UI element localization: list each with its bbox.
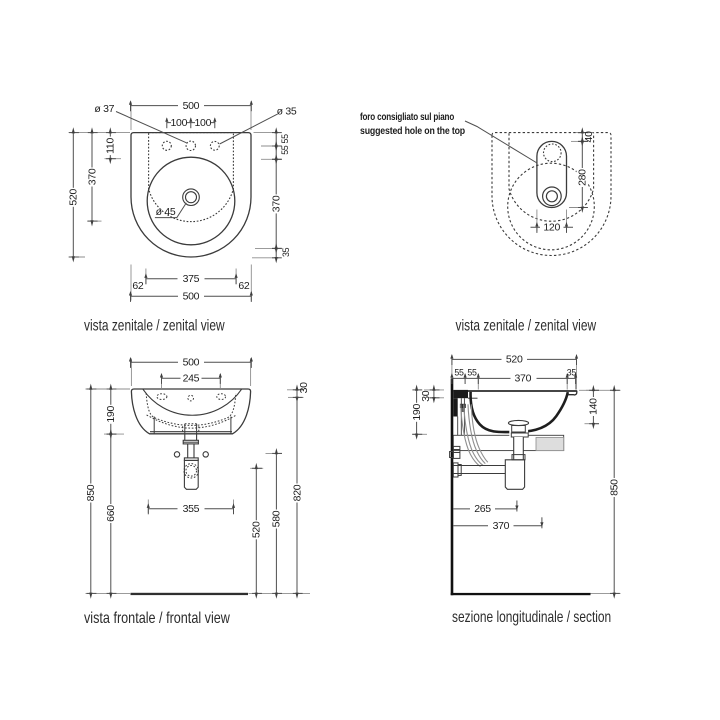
svg-text:850: 850	[609, 479, 621, 496]
svg-text:ø 35: ø 35	[277, 106, 297, 118]
svg-text:30: 30	[420, 390, 432, 402]
svg-text:660: 660	[105, 505, 117, 522]
svg-text:62: 62	[132, 280, 144, 292]
svg-text:500: 500	[183, 100, 200, 112]
svg-text:370: 370	[271, 195, 283, 212]
svg-text:62: 62	[238, 280, 250, 292]
svg-text:500: 500	[183, 291, 200, 303]
svg-text:110: 110	[105, 138, 117, 154]
svg-text:35: 35	[281, 247, 291, 257]
svg-text:vista zenitale / zenital view: vista zenitale / zenital view	[84, 316, 225, 334]
svg-text:245: 245	[183, 373, 200, 385]
svg-text:580: 580	[271, 510, 283, 527]
svg-text:520: 520	[68, 189, 80, 206]
svg-text:190: 190	[105, 406, 117, 423]
svg-text:100: 100	[194, 117, 211, 129]
svg-text:foro consigliato sul piano: foro consigliato sul piano	[360, 111, 455, 122]
svg-text:suggested hole on the top: suggested hole on the top	[360, 124, 465, 136]
svg-text:850: 850	[85, 484, 97, 501]
svg-text:55: 55	[454, 368, 464, 378]
svg-text:120: 120	[543, 222, 560, 234]
svg-text:100: 100	[170, 117, 187, 129]
svg-text:265: 265	[474, 503, 491, 515]
svg-text:55: 55	[467, 368, 477, 378]
svg-text:520: 520	[251, 521, 263, 538]
svg-text:355: 355	[183, 503, 200, 515]
svg-text:280: 280	[577, 169, 589, 186]
svg-text:820: 820	[291, 484, 303, 501]
svg-text:370: 370	[86, 168, 98, 185]
svg-text:40: 40	[583, 131, 595, 143]
svg-text:sezione longitudinale / sectio: sezione longitudinale / section	[452, 607, 611, 625]
svg-text:140: 140	[588, 398, 600, 415]
svg-text:375: 375	[183, 273, 200, 285]
svg-text:520: 520	[506, 354, 523, 366]
svg-text:ø 37: ø 37	[94, 103, 114, 115]
svg-text:55: 55	[280, 134, 290, 144]
svg-text:35: 35	[567, 368, 577, 378]
svg-text:190: 190	[411, 404, 423, 421]
svg-text:500: 500	[183, 357, 200, 369]
svg-text:ø 45: ø 45	[156, 206, 176, 218]
svg-text:370: 370	[493, 520, 510, 532]
svg-text:370: 370	[514, 373, 531, 385]
svg-text:55: 55	[280, 145, 290, 155]
svg-text:30: 30	[298, 382, 310, 394]
svg-text:vista frontale / frontal view: vista frontale / frontal view	[84, 609, 231, 627]
svg-text:vista zenitale / zenital view: vista zenitale / zenital view	[456, 316, 597, 334]
